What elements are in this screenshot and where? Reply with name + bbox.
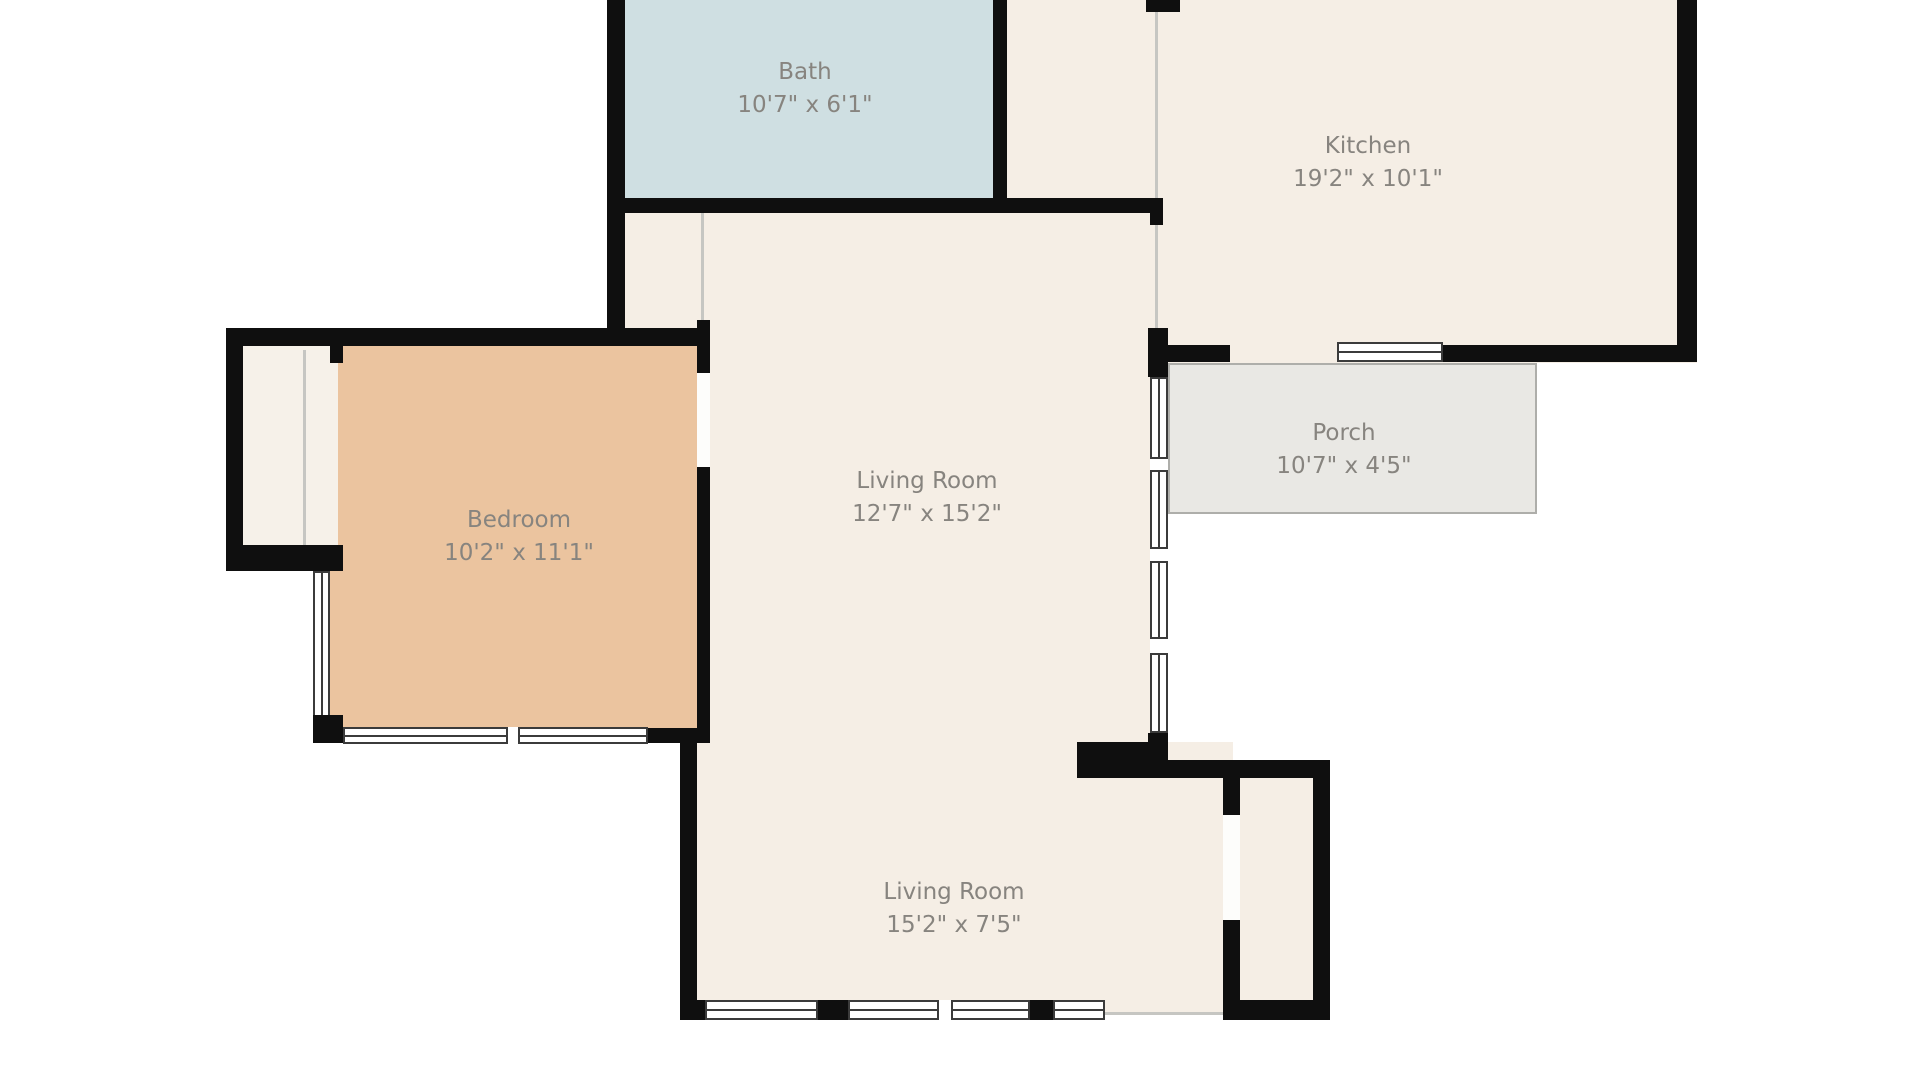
room-label-bedroom: Bedroom 10'2" x 11'1" — [444, 504, 594, 570]
wall-segment — [1443, 345, 1697, 362]
wall-segment — [648, 728, 710, 743]
wall-segment — [1163, 345, 1230, 362]
hallway-floor — [618, 198, 708, 338]
wall-segment — [607, 198, 1163, 213]
wall-segment — [1677, 0, 1697, 362]
kitchen-open-boundary-line — [1155, 12, 1158, 198]
room-dimensions: 10'7" x 4'5" — [1276, 450, 1411, 483]
living-room-bottom-window-1 — [705, 1000, 818, 1020]
bedroom-bottom-window — [343, 727, 648, 744]
bedroom-door-opening — [697, 373, 710, 467]
wall-segment — [680, 743, 697, 1020]
wall-segment — [697, 467, 710, 743]
closet-door-line — [303, 350, 306, 545]
wall-segment — [226, 328, 243, 571]
room-label-bath: Bath 10'7" x 6'1" — [737, 56, 872, 122]
wall-segment — [1223, 1000, 1330, 1020]
entry-nook-door-opening — [1223, 815, 1240, 920]
wall-segment — [1223, 778, 1240, 815]
wall-segment — [1148, 733, 1168, 743]
bedroom-side-window — [313, 571, 330, 718]
wall-segment — [697, 320, 710, 373]
wall-segment — [226, 545, 343, 571]
room-name: Bath — [737, 56, 872, 89]
wall-segment — [680, 1000, 705, 1020]
kitchen-porch-window — [1337, 342, 1443, 362]
kitchen-livingroom-open-boundary-line — [1155, 225, 1158, 328]
room-name: Porch — [1276, 417, 1411, 450]
wall-segment — [607, 0, 625, 346]
window-mullion — [1150, 547, 1168, 563]
room-label-kitchen: Kitchen 19'2" x 10'1" — [1293, 130, 1443, 196]
wall-segment — [818, 1000, 848, 1020]
wall-segment — [1168, 760, 1330, 778]
room-dimensions: 19'2" x 10'1" — [1293, 163, 1443, 196]
room-dimensions: 15'2" x 7'5" — [883, 909, 1024, 942]
room-name: Living Room — [852, 465, 1002, 498]
room-name: Living Room — [883, 876, 1024, 909]
window-mullion — [1150, 457, 1168, 472]
wall-segment — [993, 0, 1007, 210]
room-label-lower-living-room: Living Room 15'2" x 7'5" — [883, 876, 1024, 942]
wall-segment — [1077, 742, 1168, 778]
room-name: Kitchen — [1293, 130, 1443, 163]
lower-livingroom-opening-line — [1105, 1012, 1223, 1015]
wall-segment — [226, 328, 710, 346]
wall-segment — [1030, 1000, 1053, 1020]
entry-nook-floor — [1233, 770, 1318, 1005]
living-room-bottom-window-3 — [1053, 1000, 1105, 1020]
room-dimensions: 10'7" x 6'1" — [737, 89, 872, 122]
window-mullion — [506, 727, 520, 744]
closet-floor — [238, 340, 338, 552]
window-mullion — [1150, 637, 1168, 655]
hallway-livingroom-open-boundary-line — [701, 213, 704, 320]
wall-segment — [330, 346, 343, 363]
window-mullion — [937, 1000, 953, 1020]
wall-segment — [313, 715, 343, 743]
room-name: Bedroom — [444, 504, 594, 537]
room-dimensions: 12'7" x 15'2" — [852, 498, 1002, 531]
wall-segment — [1150, 210, 1163, 225]
wall-segment — [1146, 0, 1180, 12]
room-label-living-room: Living Room 12'7" x 15'2" — [852, 465, 1002, 531]
floor-plan: Bath 10'7" x 6'1" Kitchen 19'2" x 10'1" … — [0, 0, 1920, 1080]
wall-segment — [1313, 778, 1330, 1000]
room-label-porch: Porch 10'7" x 4'5" — [1276, 417, 1411, 483]
room-dimensions: 10'2" x 11'1" — [444, 537, 594, 570]
wall-segment — [1148, 328, 1168, 377]
